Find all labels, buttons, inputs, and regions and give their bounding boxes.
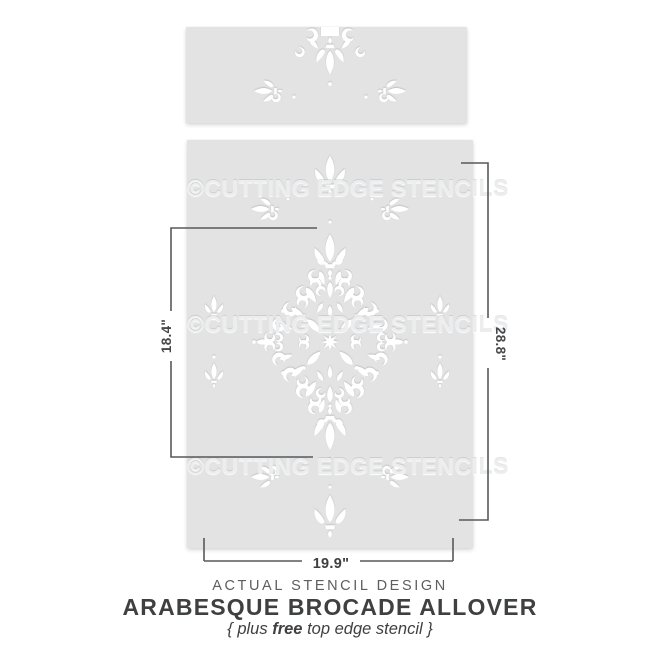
design-width-label: 19.9" xyxy=(300,553,362,573)
stencil-height-label: 28.8" xyxy=(489,322,511,366)
subtitle-free: free xyxy=(272,620,302,638)
design-height-bracket xyxy=(171,228,317,457)
product-image: ©CUTTING EDGE STENCILS ©CUTTING EDGE STE… xyxy=(0,0,650,650)
design-height-label: 18.4" xyxy=(156,314,178,358)
subtitle-rest: top edge stencil } xyxy=(302,620,432,638)
caption: ACTUAL STENCIL DESIGN xyxy=(0,578,650,594)
product-title: ARABESQUE BROCADE ALLOVER xyxy=(0,594,650,621)
subtitle-open: { plus xyxy=(227,620,272,638)
product-subtitle: { plus free top edge stencil } xyxy=(0,620,650,639)
stencil-height-bracket xyxy=(459,163,488,520)
